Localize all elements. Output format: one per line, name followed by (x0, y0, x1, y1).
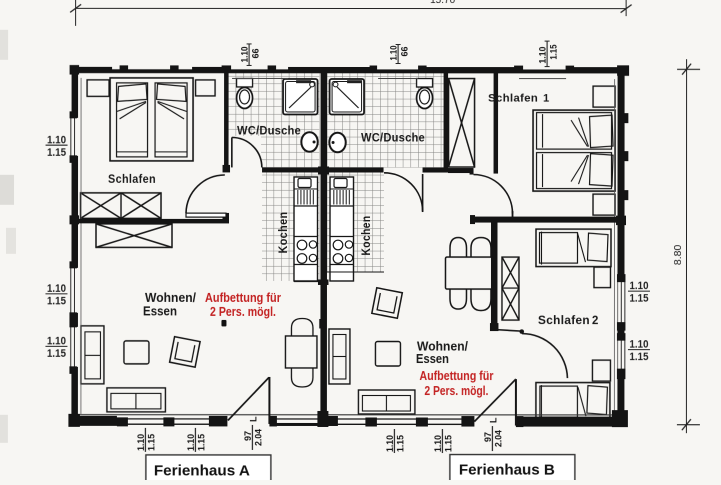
svg-text:L: L (248, 416, 258, 422)
svg-text:15.70: 15.70 (430, 0, 455, 6)
svg-text:1.15: 1.15 (443, 435, 453, 452)
svg-text:2.04: 2.04 (253, 429, 263, 446)
svg-text:Essen: Essen (143, 303, 177, 318)
svg-text:2.04: 2.04 (493, 430, 503, 447)
svg-text:1.10: 1.10 (240, 46, 250, 62)
svg-text:WC/Dusche: WC/Dusche (361, 133, 425, 145)
svg-text:1.10: 1.10 (186, 434, 196, 451)
svg-text:97: 97 (243, 431, 253, 441)
svg-text:1.10: 1.10 (47, 283, 66, 295)
svg-text:1.15: 1.15 (549, 45, 559, 60)
svg-text:1.10: 1.10 (629, 280, 648, 292)
svg-text:Essen: Essen (416, 351, 449, 366)
svg-text:1: 1 (543, 93, 549, 105)
svg-text:Ferienhaus B: Ferienhaus B (459, 462, 555, 479)
svg-text:1.10: 1.10 (433, 435, 443, 452)
svg-text:Schlafen: Schlafen (488, 93, 538, 105)
svg-text:1.10: 1.10 (47, 134, 66, 146)
svg-text:Kochen: Kochen (276, 211, 290, 253)
svg-text:Schlafen: Schlafen (538, 315, 590, 327)
svg-text:1.15: 1.15 (47, 147, 66, 159)
svg-text:66: 66 (400, 47, 410, 57)
svg-text:1.15: 1.15 (629, 351, 648, 363)
svg-text:1.10: 1.10 (629, 339, 648, 351)
svg-text:8.80: 8.80 (672, 245, 684, 266)
svg-text:1.10: 1.10 (385, 435, 395, 452)
svg-text:1.10: 1.10 (47, 336, 66, 348)
svg-text:Aufbettung für: Aufbettung für (419, 369, 493, 383)
svg-text:WC/Dusche: WC/Dusche (237, 125, 301, 137)
svg-text:1.15: 1.15 (47, 295, 66, 307)
svg-text:1.15: 1.15 (395, 435, 405, 452)
svg-text:Schlafen: Schlafen (108, 174, 156, 186)
svg-text:1.15: 1.15 (47, 348, 66, 360)
svg-text:1.10: 1.10 (136, 434, 146, 451)
svg-text:1.15: 1.15 (196, 434, 206, 451)
svg-text:1.10: 1.10 (538, 47, 548, 64)
svg-text:L: L (488, 417, 498, 423)
svg-text:Ferienhaus A: Ferienhaus A (154, 462, 250, 479)
svg-text:2 Pers. mögl.: 2 Pers. mögl. (424, 384, 488, 398)
svg-text:1.15: 1.15 (629, 293, 648, 305)
svg-text:97: 97 (483, 432, 493, 442)
svg-text:Kochen: Kochen (359, 215, 373, 255)
svg-text:1.15: 1.15 (146, 434, 156, 451)
svg-text:Aufbettung für: Aufbettung für (205, 291, 281, 305)
svg-text:66: 66 (251, 48, 261, 58)
svg-text:1.10: 1.10 (389, 46, 399, 61)
svg-text:2: 2 (592, 315, 598, 327)
svg-text:2 Pers. mögl.: 2 Pers. mögl. (210, 305, 276, 319)
